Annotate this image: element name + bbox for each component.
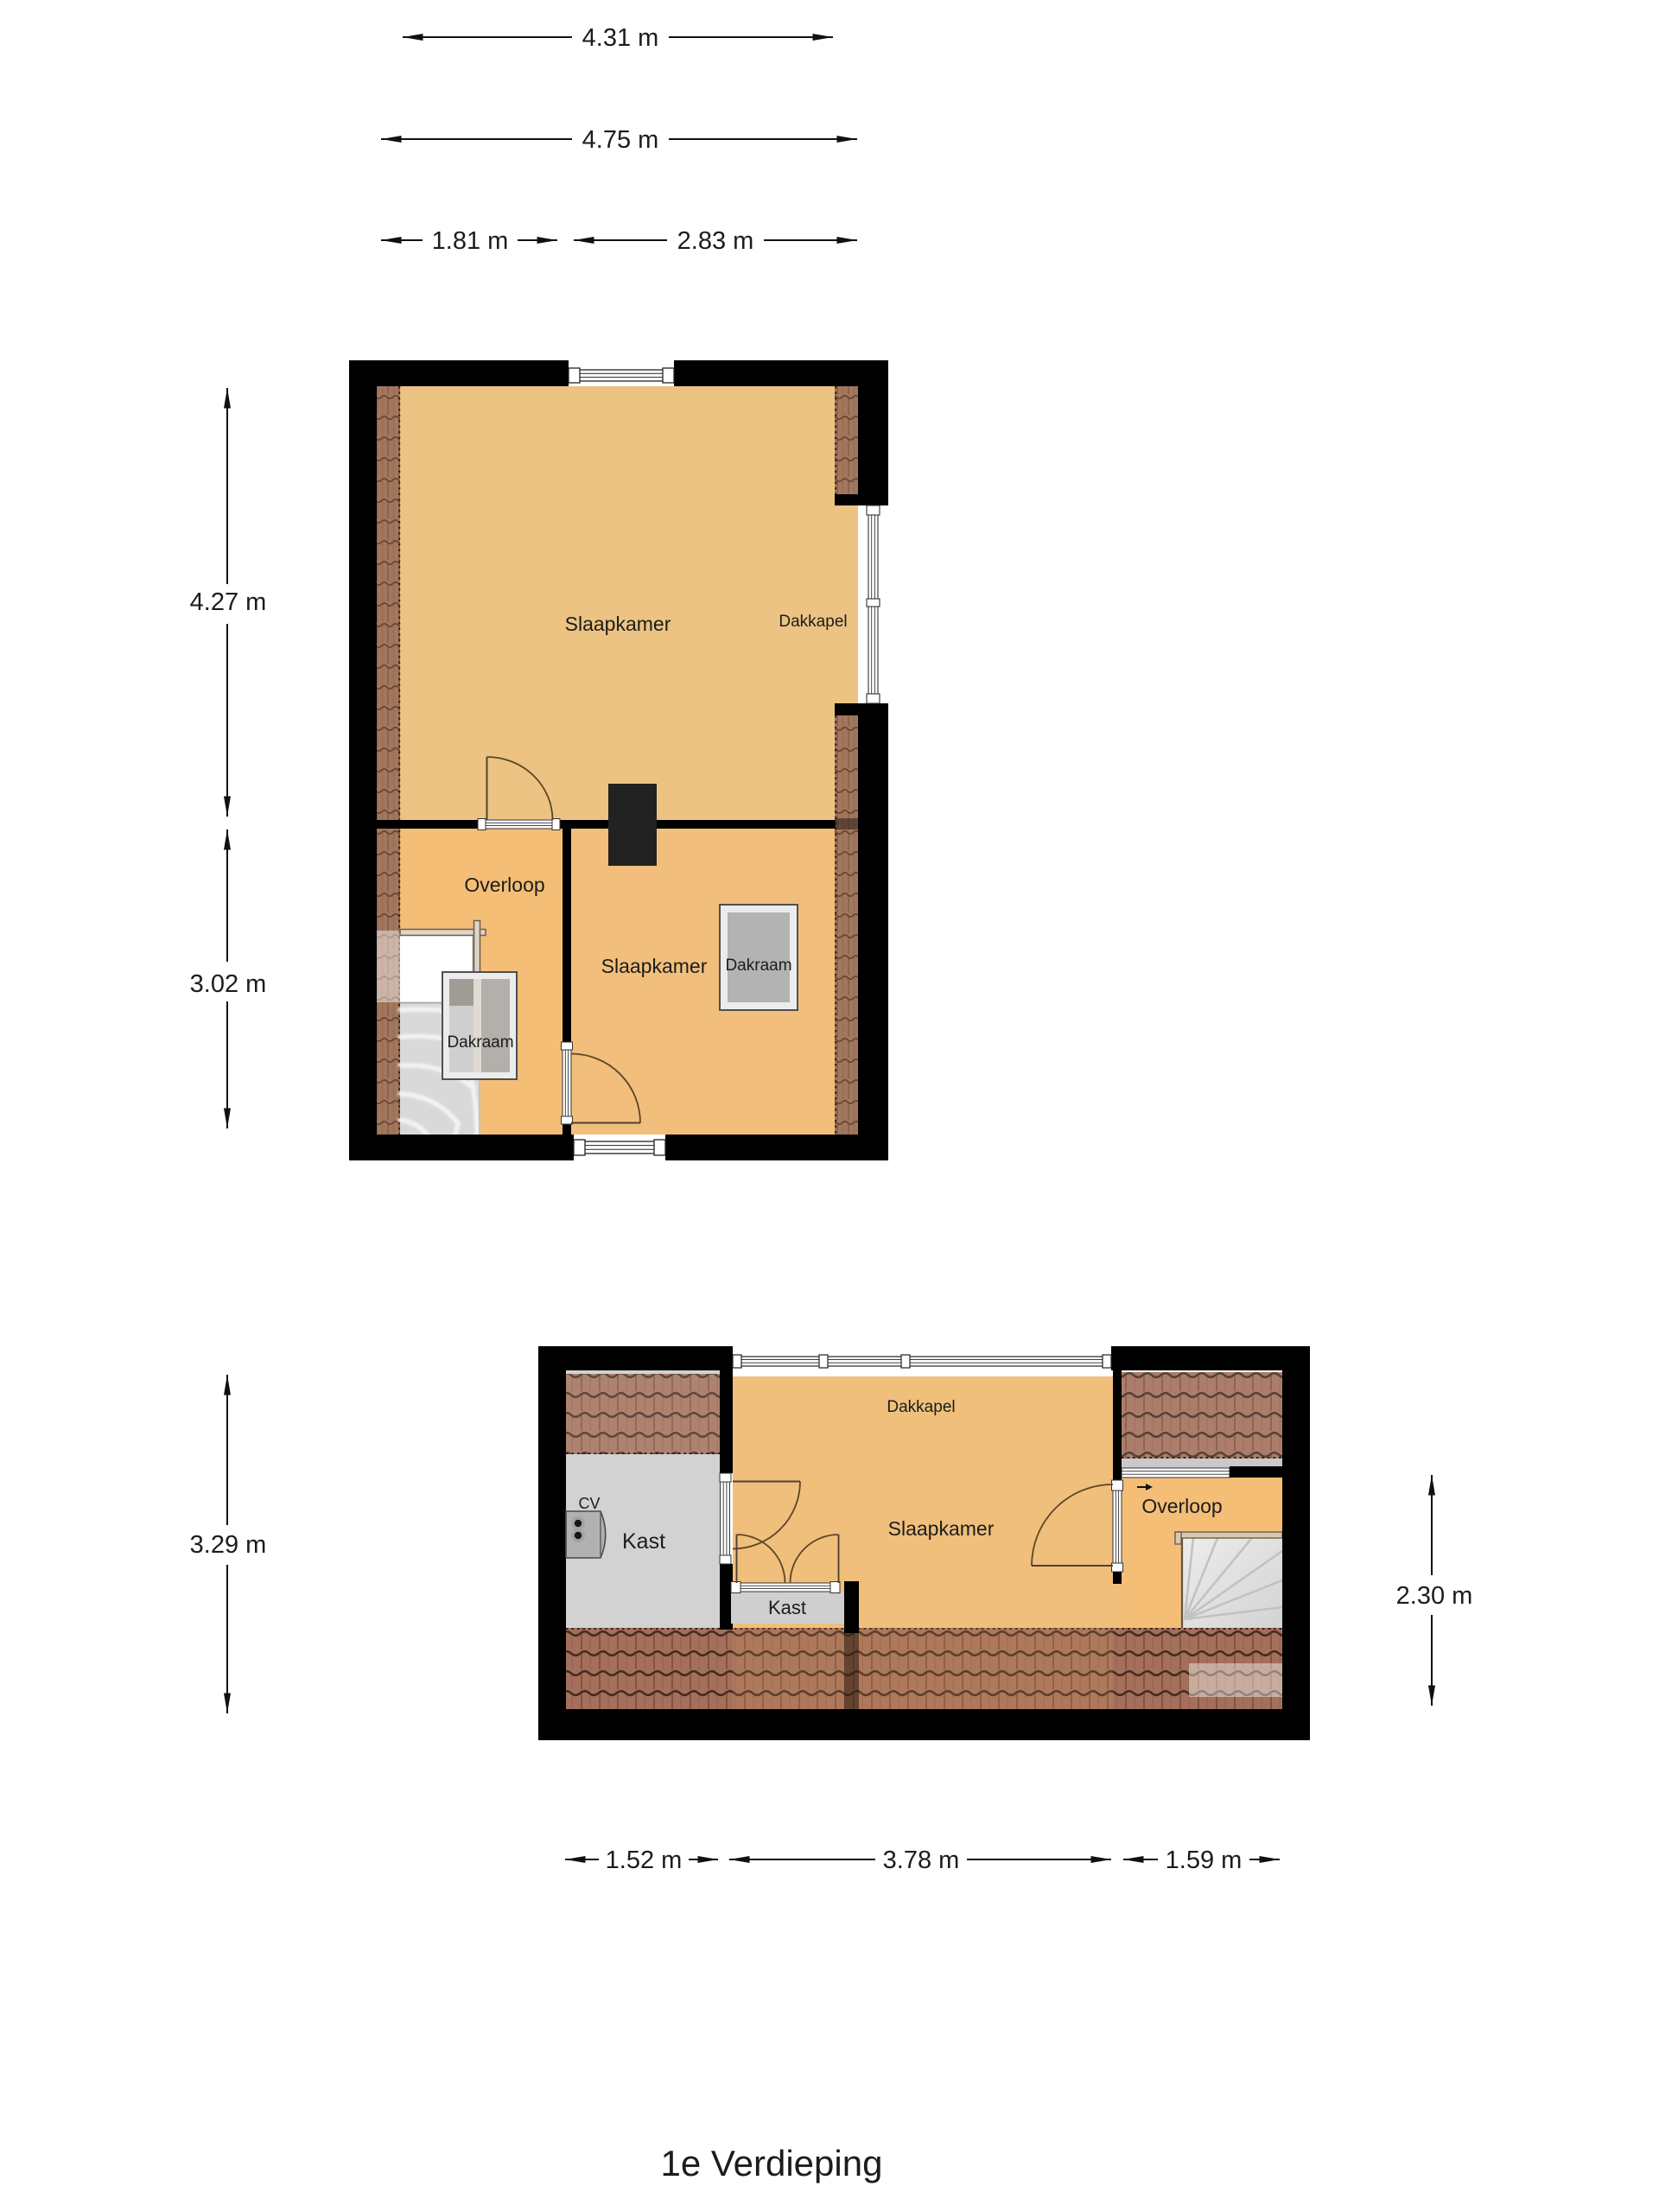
svg-text:4.75 m: 4.75 m [582, 126, 659, 154]
svg-text:Slaapkamer: Slaapkamer [601, 955, 708, 977]
svg-text:Dakraam: Dakraam [725, 957, 791, 975]
svg-text:CV: CV [578, 1495, 600, 1512]
svg-text:Overloop: Overloop [1141, 1495, 1222, 1517]
svg-text:Kast: Kast [622, 1529, 665, 1554]
svg-text:Kast: Kast [768, 1597, 806, 1618]
svg-text:3.02 m: 3.02 m [190, 970, 267, 998]
svg-text:3.78 m: 3.78 m [883, 1847, 960, 1874]
svg-text:Dakkapel: Dakkapel [887, 1398, 955, 1416]
svg-text:Slaapkamer: Slaapkamer [565, 613, 671, 635]
svg-text:Dakraam: Dakraam [447, 1033, 513, 1052]
svg-text:1.59 m: 1.59 m [1166, 1847, 1243, 1874]
svg-text:Overloop: Overloop [464, 874, 544, 896]
svg-text:4.27 m: 4.27 m [190, 588, 267, 616]
svg-text:4.31 m: 4.31 m [582, 24, 659, 52]
svg-text:2.30 m: 2.30 m [1396, 1582, 1473, 1610]
svg-text:2.83 m: 2.83 m [677, 227, 754, 255]
svg-text:Slaapkamer: Slaapkamer [888, 1517, 995, 1540]
svg-text:1.81 m: 1.81 m [432, 227, 509, 255]
svg-text:Dakkapel: Dakkapel [779, 613, 847, 631]
svg-text:1.52 m: 1.52 m [606, 1847, 683, 1874]
svg-text:3.29 m: 3.29 m [190, 1531, 267, 1559]
svg-text:1e Verdieping: 1e Verdieping [661, 2143, 883, 2183]
